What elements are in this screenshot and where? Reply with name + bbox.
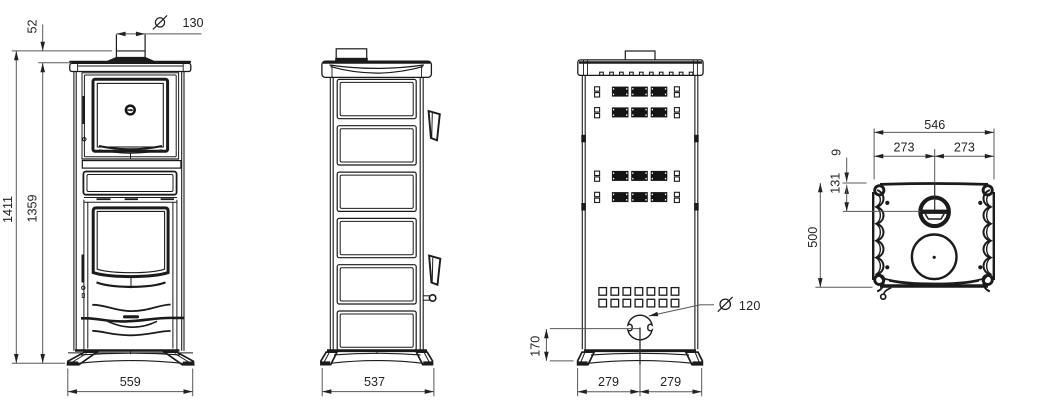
svg-text:1411: 1411 xyxy=(1,196,15,223)
svg-text:500: 500 xyxy=(806,227,820,248)
svg-text:120: 120 xyxy=(739,299,761,313)
svg-text:1359: 1359 xyxy=(26,194,40,222)
svg-text:273: 273 xyxy=(954,140,975,154)
svg-text:130: 130 xyxy=(182,16,203,30)
svg-text:546: 546 xyxy=(924,118,945,132)
svg-text:537: 537 xyxy=(364,375,385,389)
svg-text:273: 273 xyxy=(893,140,914,154)
svg-text:559: 559 xyxy=(120,375,141,389)
svg-text:279: 279 xyxy=(598,375,619,389)
svg-text:170: 170 xyxy=(529,336,543,357)
svg-text:131: 131 xyxy=(829,173,843,194)
svg-text:279: 279 xyxy=(660,375,681,389)
svg-text:9: 9 xyxy=(829,149,843,156)
svg-text:52: 52 xyxy=(26,19,40,33)
